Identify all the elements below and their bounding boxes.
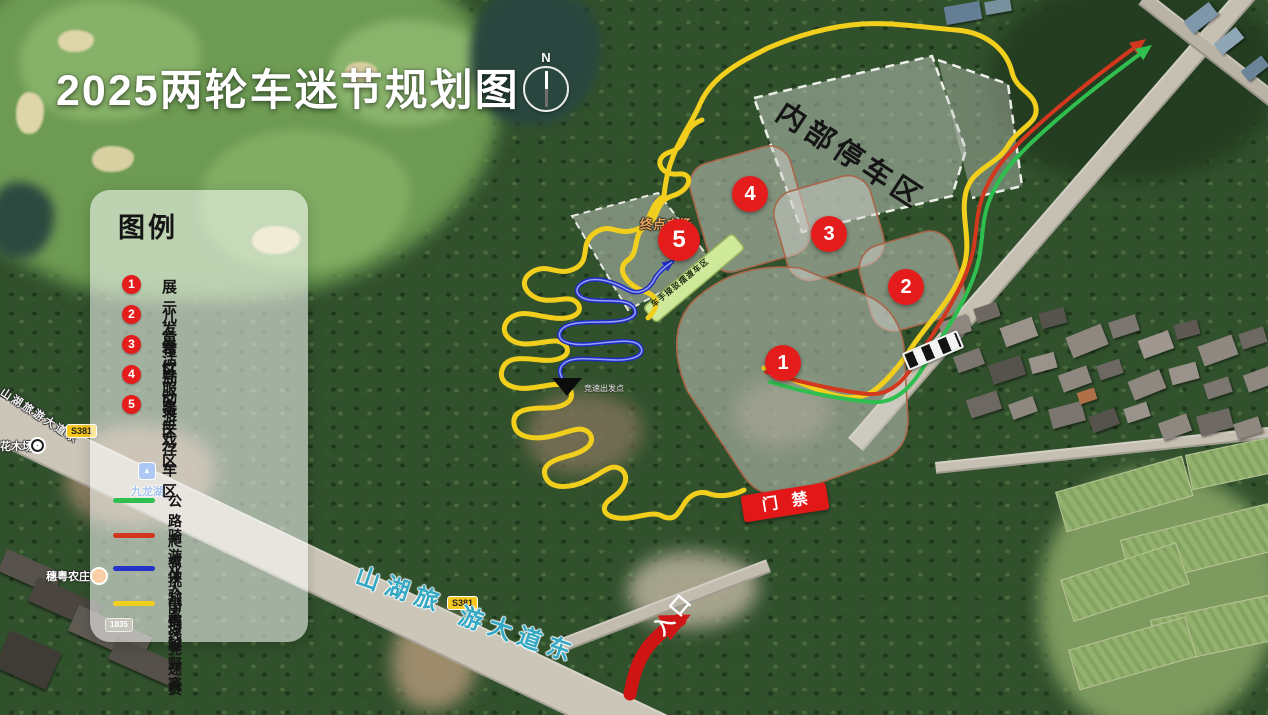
zone-label: 车手存车区 [162,396,178,501]
downhill-start-label: 竞速出发点 [584,383,624,394]
zone-number-badge: 2 [122,305,141,324]
page-title: 2025两轮车迷节规划图 [56,56,520,118]
compass-dial-icon [523,66,569,112]
legend-panel: 图例 1 展示发布区 2 儿童活动区 3 餐饮服务区 4 互动游戏区 5 车手存… [90,190,308,642]
zone-marker-4: 4 [732,176,768,212]
zone-number-badge: 5 [122,395,141,414]
zone-number-badge: 1 [122,275,141,294]
compass-north-label: N [523,50,569,65]
route-line-red [113,533,155,538]
route-line-green [113,498,155,503]
zone-marker-3: 3 [811,216,847,252]
route-line-yellow [113,601,155,606]
zone-marker-2: 2 [888,269,924,305]
compass: N [523,50,569,112]
planning-map-view: 山湖旅游大道东 S381 1835 花木场 ▲ 九龙湖 穗粤农庄 山湖旅 S38… [0,0,1268,715]
zone-number-badge: 3 [122,335,141,354]
route-line-blue [113,566,155,571]
zone-marker-5: 5 [658,219,700,261]
route-downhill-race [552,262,672,396]
zone-number-badge: 4 [122,365,141,384]
downhill-start-marker [552,378,582,396]
route-label: 山地越野赛 [168,594,182,694]
legend-title: 图例 [118,206,178,245]
zone-marker-1: 1 [765,345,801,381]
